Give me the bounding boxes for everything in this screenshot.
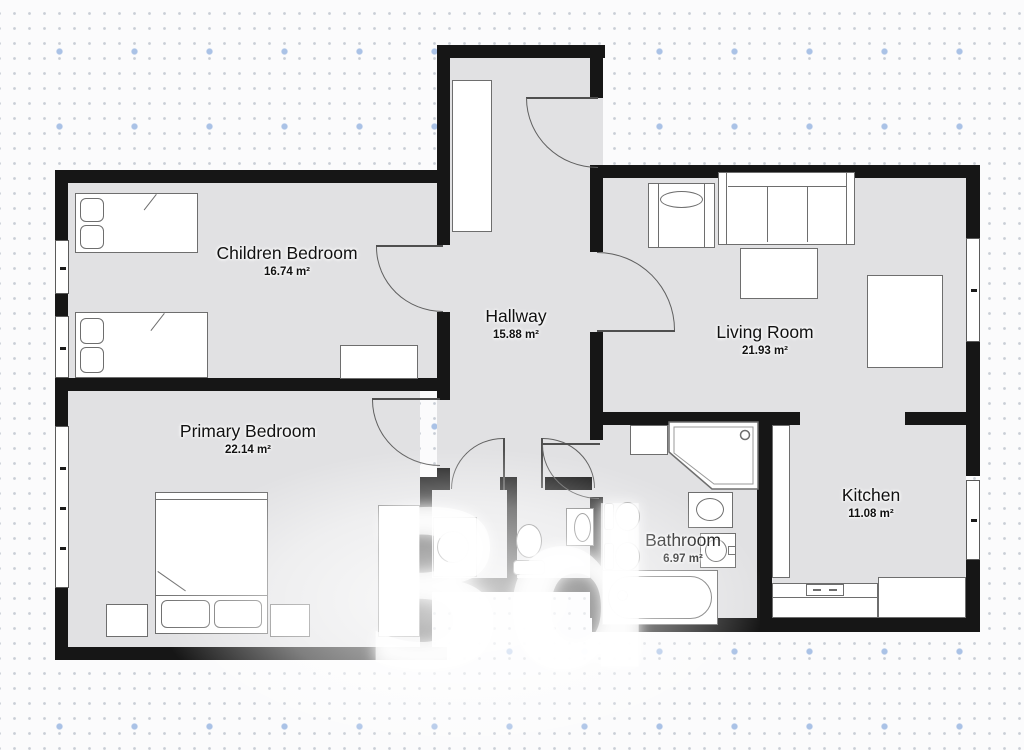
side-table — [867, 275, 943, 368]
wall-segment — [437, 183, 450, 245]
window — [55, 316, 69, 378]
pillow — [80, 225, 104, 249]
room-area: 16.74 m² — [216, 264, 357, 281]
toilet — [513, 524, 545, 576]
room-area: 21.93 m² — [716, 343, 813, 360]
wall-segment — [590, 332, 603, 440]
window — [55, 240, 69, 294]
pillow — [80, 198, 104, 222]
wall-segment — [590, 45, 603, 98]
room-label-living-room: Living Room 21.93 m² — [716, 322, 813, 360]
nightstand — [270, 604, 310, 637]
faucet — [728, 546, 736, 555]
window — [966, 238, 980, 342]
toilet — [604, 500, 641, 533]
room-area: 15.88 m² — [485, 327, 546, 344]
wall-segment — [437, 45, 450, 183]
sofa-seat — [728, 186, 767, 242]
bathroom-cabinet — [630, 425, 668, 455]
wall-segment — [420, 578, 612, 592]
double-bed — [155, 492, 268, 634]
room-area: 22.14 m² — [180, 442, 316, 459]
room-name: Bathroom — [645, 530, 721, 551]
washing-machine — [433, 517, 477, 577]
room-area: 11.08 m² — [842, 506, 900, 523]
room-label-primary-bedroom: Primary Bedroom 22.14 m² — [180, 421, 316, 459]
window — [966, 480, 980, 560]
nightstand — [106, 604, 148, 637]
wall-segment — [966, 165, 980, 238]
wall-segment — [55, 378, 450, 391]
window — [55, 426, 69, 588]
room-name: Primary Bedroom — [180, 421, 316, 442]
sofa — [718, 172, 855, 245]
armchair-cushion — [660, 191, 703, 208]
single-bed — [75, 193, 198, 253]
wardrobe — [378, 505, 420, 637]
pillow — [80, 347, 104, 373]
wall-segment — [437, 312, 450, 400]
corner-shower — [668, 421, 760, 491]
sofa-seat — [767, 186, 807, 242]
wall-segment — [590, 165, 603, 252]
pillow — [161, 600, 210, 628]
closet — [452, 80, 492, 232]
wall-segment — [55, 647, 447, 660]
room-name: Kitchen — [842, 485, 900, 506]
room-name: Hallway — [485, 306, 546, 327]
armchair — [648, 183, 715, 248]
utility-door-leaf — [503, 438, 505, 490]
bidet — [604, 540, 641, 573]
pillow — [214, 600, 262, 628]
wall-segment — [55, 170, 450, 183]
room-name: Children Bedroom — [216, 243, 357, 264]
pillow — [80, 318, 104, 344]
wall-segment — [420, 490, 432, 660]
sofa-seat — [807, 186, 846, 242]
room-area: 6.97 m² — [645, 551, 721, 568]
coffee-table — [740, 248, 818, 299]
room-label-bathroom: Bathroom 6.97 m² — [645, 530, 721, 568]
kitchen-counter — [878, 577, 966, 618]
room-name: Living Room — [716, 322, 813, 343]
room-label-kitchen: Kitchen 11.08 m² — [842, 485, 900, 523]
wall-segment — [905, 412, 966, 425]
room-label-hallway: Hallway 15.88 m² — [485, 306, 546, 344]
room-label-children-bedroom: Children Bedroom 16.74 m² — [216, 243, 357, 281]
stove — [806, 584, 844, 596]
desk — [340, 345, 418, 379]
kitchen-counter — [772, 425, 790, 578]
floor-plan: Children Bedroom 16.74 m² Primary Bedroo… — [0, 0, 1024, 725]
living-room-door-leaf — [597, 330, 675, 332]
sink — [566, 508, 594, 546]
kitchen-opening-floor — [800, 412, 905, 425]
wall-segment — [420, 477, 448, 490]
single-bed — [75, 312, 208, 378]
washing-machine — [688, 492, 733, 528]
wall-segment — [437, 45, 605, 58]
wall-segment — [966, 342, 980, 476]
bathtub — [602, 570, 718, 625]
